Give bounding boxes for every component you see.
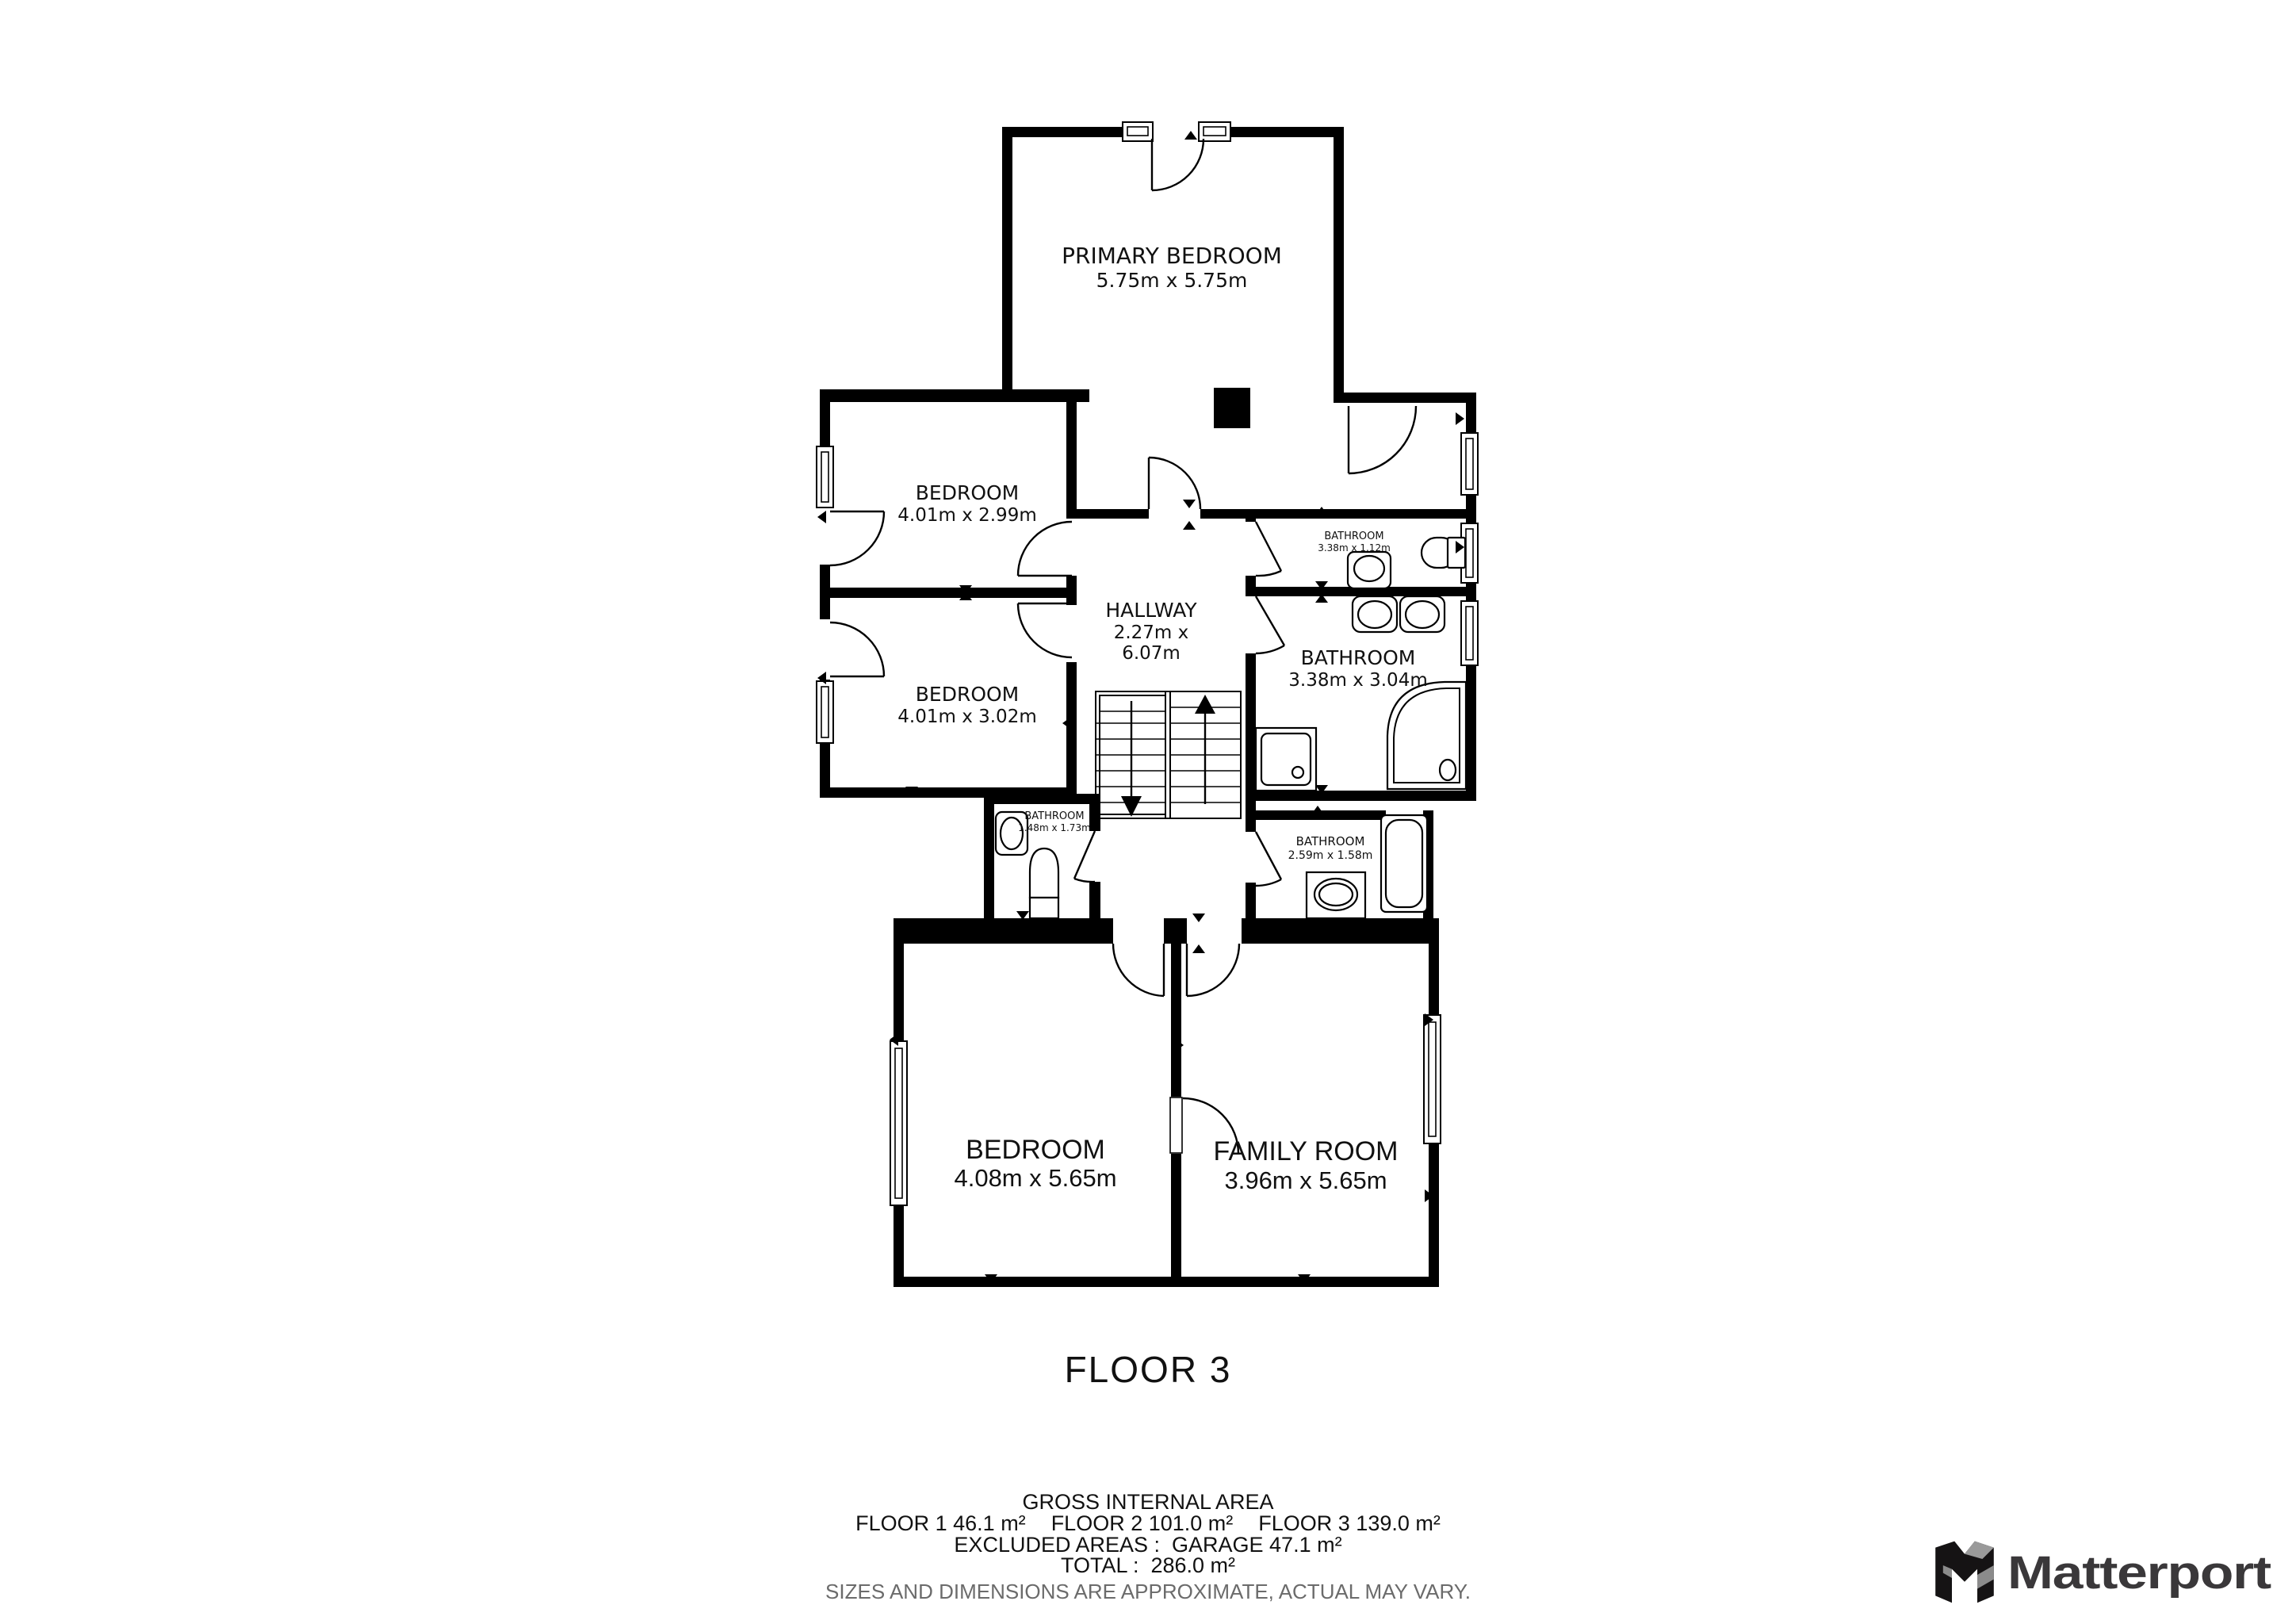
room-label-hallway: HALLWAY <box>1105 599 1197 622</box>
toilet-icon <box>1422 538 1465 568</box>
room-label-bedroom-2: BEDROOM <box>916 683 1020 706</box>
room-dims-bathroom-small: 1.48m x 1.73m <box>1018 822 1091 833</box>
room-labels: PRIMARY BEDROOM 5.75m x 5.75m BEDROOM 4.… <box>897 243 1427 1194</box>
wall <box>820 389 1089 402</box>
door-opening <box>1187 917 1242 945</box>
stair-arrow-down <box>1121 701 1142 817</box>
shower-icon <box>1256 728 1316 791</box>
door-opening <box>1244 522 1257 576</box>
room-dims-family-room: 3.96m x 5.65m <box>1224 1166 1387 1194</box>
room-label-bathroom-top: BATHROOM <box>1324 530 1383 542</box>
wall <box>1089 882 1100 920</box>
room-dims-primary-bedroom: 5.75m x 5.75m <box>1096 269 1248 292</box>
room-label-primary-bedroom: PRIMARY BEDROOM <box>1062 243 1282 269</box>
door-opening <box>1065 519 1078 576</box>
stairs <box>1096 691 1241 818</box>
door-bedroom3-entry <box>1113 944 1164 996</box>
toilet-icon <box>1030 848 1058 918</box>
room-dims-bathroom-top: 3.38m x 1.12m <box>1318 542 1391 553</box>
door-opening <box>1065 605 1078 662</box>
total-line: TOTAL : 286.0 m² <box>1061 1553 1235 1577</box>
bathtub-icon <box>1381 815 1427 912</box>
matterport-wordmark: Matterport <box>2007 1547 2271 1599</box>
sink-icon <box>1353 596 1397 632</box>
room-dims-bathroom-main: 3.38m x 3.04m <box>1288 670 1427 691</box>
room-label-bathroom-main: BATHROOM <box>1301 646 1416 669</box>
window-pane <box>1203 127 1226 136</box>
wall <box>1246 791 1466 801</box>
wall <box>820 588 1077 598</box>
window-pane <box>821 452 828 502</box>
window-pane <box>1429 1022 1436 1136</box>
room-dims-bathroom-lower: 2.59m x 1.58m <box>1288 849 1373 862</box>
door-bathroom-top <box>1256 522 1281 576</box>
room-dims-bedroom-1: 4.01m x 2.99m <box>897 505 1036 526</box>
wall <box>894 1277 1439 1287</box>
door-bedroom2-entry <box>1018 603 1072 657</box>
sink-icon <box>1307 872 1365 918</box>
wall <box>894 918 1439 944</box>
door-opening <box>1149 507 1200 520</box>
wall <box>1002 127 1012 389</box>
sink-icon <box>1348 552 1391 588</box>
floor-areas-line: FLOOR 1 46.1 m²FLOOR 2 101.0 m²FLOOR 3 1… <box>855 1511 1441 1535</box>
floor-plan-canvas: PRIMARY BEDROOM 5.75m x 5.75m BEDROOM 4.… <box>0 0 2296 1624</box>
stair-treads <box>1096 707 1241 802</box>
door-bedroom1-balcony <box>830 511 884 565</box>
door-bathroom-main <box>1256 596 1284 653</box>
room-dims-bedroom-3: 4.08m x 5.65m <box>954 1164 1116 1192</box>
door-bathroom-lower <box>1256 832 1281 886</box>
door-opening <box>818 619 832 680</box>
room-label-bedroom-3: BEDROOM <box>966 1135 1105 1165</box>
sink-icon <box>1400 596 1445 632</box>
room-dims-hallway-1: 2.27m x <box>1114 622 1189 643</box>
floor-plan-page: PRIMARY BEDROOM 5.75m x 5.75m BEDROOM 4.… <box>0 0 2296 1624</box>
room-label-bathroom-lower: BATHROOM <box>1296 834 1365 848</box>
footer-area-summary: GROSS INTERNAL AREA FLOOR 1 46.1 m²FLOOR… <box>825 1490 1471 1603</box>
window-pane <box>1466 607 1473 660</box>
disclaimer-text: SIZES AND DIMENSIONS ARE APPROXIMATE, AC… <box>825 1580 1471 1603</box>
stair-divider <box>1165 691 1170 818</box>
corner-bath-icon <box>1387 682 1466 789</box>
gross-internal-area-label: GROSS INTERNAL AREA <box>1022 1490 1273 1514</box>
room-label-family-room: FAMILY ROOM <box>1213 1136 1398 1166</box>
door-bedroom1-entry <box>1018 522 1072 576</box>
wall <box>984 787 994 926</box>
wall <box>984 794 1100 804</box>
sink-icon <box>996 812 1027 855</box>
door-opening <box>1244 596 1257 653</box>
stair-arrow-up <box>1195 695 1215 804</box>
window-pane <box>895 1048 902 1198</box>
matterport-logo-icon <box>1935 1542 1994 1603</box>
room-label-bedroom-1: BEDROOM <box>916 481 1020 504</box>
wall <box>1334 127 1344 403</box>
room-label-bathroom-small: BATHROOM <box>1024 810 1084 822</box>
wall <box>1066 509 1466 519</box>
door-corridor <box>1349 406 1416 473</box>
door-opening <box>1244 832 1257 883</box>
door-opening <box>1113 917 1164 945</box>
wall <box>1066 389 1077 798</box>
room-dims-hallway-2: 6.07m <box>1122 643 1181 664</box>
window-pane <box>821 687 828 737</box>
chimney-block <box>1214 388 1250 428</box>
room-dims-bedroom-2: 4.01m x 3.02m <box>897 707 1036 727</box>
wall <box>1334 393 1476 403</box>
window-pane <box>1127 127 1148 136</box>
floor-title: FLOOR 3 <box>1065 1349 1232 1390</box>
door-primary-bedroom <box>1152 139 1203 190</box>
window-pane <box>1466 529 1473 577</box>
matterport-logo: Matterport <box>1935 1542 2271 1603</box>
door-bedroom2-balcony <box>830 622 884 676</box>
window-pane <box>1466 439 1473 489</box>
door-bathroom-small <box>1074 831 1095 882</box>
